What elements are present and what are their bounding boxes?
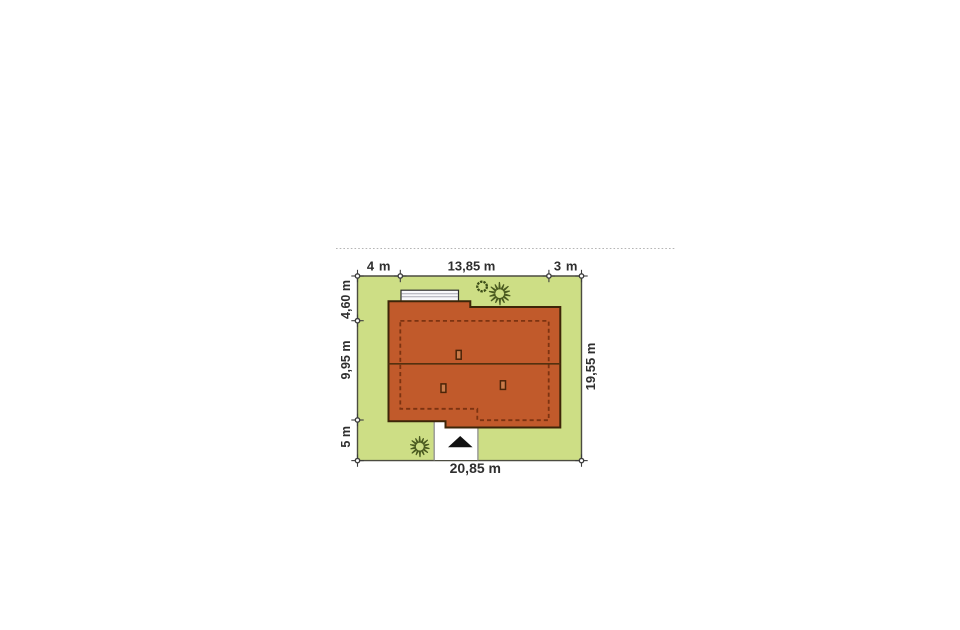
svg-text:4 m: 4 m bbox=[367, 259, 391, 274]
svg-text:9,95 m: 9,95 m bbox=[339, 341, 353, 380]
svg-text:20,85 m: 20,85 m bbox=[450, 460, 501, 476]
svg-text:13,85 m: 13,85 m bbox=[448, 259, 496, 274]
svg-text:4,60 m: 4,60 m bbox=[339, 280, 353, 319]
svg-text:5 m: 5 m bbox=[339, 426, 353, 448]
svg-text:19,55 m: 19,55 m bbox=[583, 343, 598, 391]
svg-text:3 m: 3 m bbox=[554, 259, 578, 274]
